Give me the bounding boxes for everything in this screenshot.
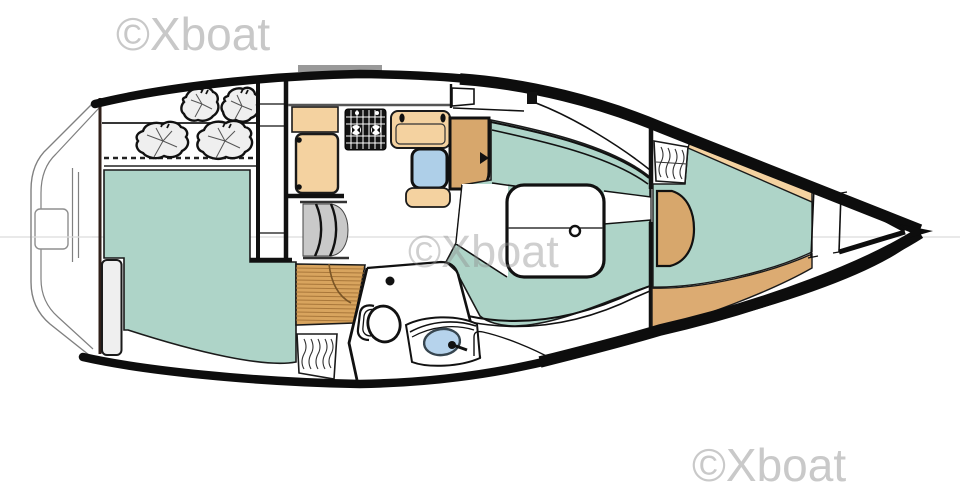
svg-text:©Xboat: ©Xboat bbox=[116, 8, 270, 60]
svg-text:©Xboat: ©Xboat bbox=[408, 226, 559, 277]
svg-text:©Xboat: ©Xboat bbox=[692, 439, 846, 491]
